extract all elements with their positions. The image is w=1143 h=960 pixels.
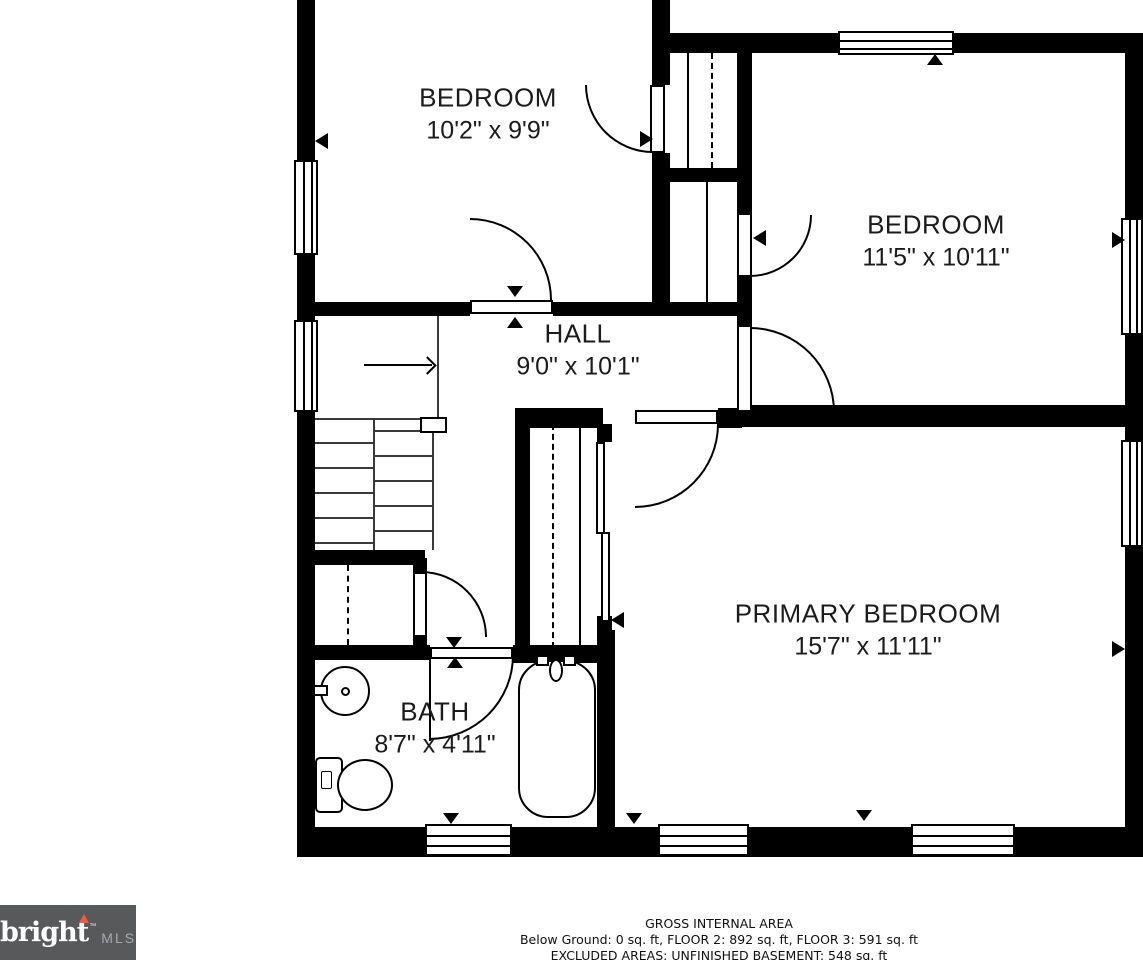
window-marker: [1112, 232, 1125, 248]
window-marker: [856, 810, 872, 821]
door-swing-arc: [635, 424, 719, 508]
stair-tread: [315, 467, 374, 469]
primary-closet-wall-west: [515, 408, 530, 663]
door-marker: [507, 286, 523, 297]
floor-areas-text: Below Ground: 0 sq. ft, FLOOR 2: 892 sq.…: [295, 932, 1143, 948]
closet-wall-west-upper: [652, 0, 670, 85]
stair-tread: [373, 480, 433, 482]
window: [911, 824, 1015, 856]
window: [838, 31, 954, 55]
window-marker: [1112, 641, 1125, 657]
window: [658, 824, 749, 856]
sliding-door-panel: [596, 442, 605, 534]
exterior-wall-left: [297, 0, 315, 857]
bathtub: [518, 660, 596, 818]
toilet-bowl: [337, 759, 393, 811]
room-label-primary-bedroom: PRIMARY BEDROOM 15'7" x 11'11": [735, 599, 1002, 662]
stair-tread: [373, 530, 433, 532]
sliding-door-panel: [601, 532, 610, 622]
door-marker: [640, 131, 653, 147]
bathtub-faucet-handle: [536, 655, 549, 666]
stair-tread: [315, 492, 374, 494]
bathtub-faucet-handle: [563, 655, 576, 666]
window-marker: [315, 133, 328, 149]
room-name: BEDROOM: [862, 210, 1009, 241]
room-label-bath: BATH 8'7" x 4'11": [374, 697, 495, 760]
stair-direction-arrowhead: [418, 356, 436, 374]
closet-shelf-line: [687, 53, 689, 168]
room-name: HALL: [516, 319, 639, 350]
bathtub-spout: [549, 659, 563, 682]
hall-top-wall-right: [553, 302, 752, 316]
bath-east-wall: [597, 630, 615, 827]
stair-tread: [373, 505, 433, 507]
room-name: PRIMARY BEDROOM: [735, 599, 1002, 630]
room-label-bedroom-left: BEDROOM 10'2" x 9'9": [419, 83, 557, 146]
room-dimensions: 11'5" x 10'11": [862, 244, 1009, 273]
window: [1121, 440, 1143, 547]
window: [294, 320, 318, 412]
sliding-door-marker: [611, 612, 624, 628]
brightmls-logo-suffix: MLS: [101, 931, 136, 945]
closet-rod-dashed-line: [552, 424, 554, 648]
room-dimensions: 15'7" x 11'11": [735, 633, 1002, 662]
closet-rod-dashed-line: [711, 53, 713, 168]
stair-tread: [315, 442, 374, 444]
room-dimensions: 9'0" x 10'1": [516, 353, 639, 382]
closet-wall-east-a: [737, 53, 752, 213]
room-label-hall: HALL 9'0" x 10'1": [516, 319, 639, 382]
room-name: BATH: [374, 697, 495, 728]
room-name: BEDROOM: [419, 83, 557, 114]
room-label-bedroom-right: BEDROOM 11'5" x 10'11": [862, 210, 1009, 273]
door-swing-arc: [750, 327, 835, 412]
brightmls-logo-brand: bright: [0, 919, 88, 946]
opening-marker: [447, 657, 463, 668]
door-swing-arc: [750, 215, 812, 277]
gross-internal-area-title: GROSS INTERNAL AREA: [295, 916, 1143, 932]
stair-tread: [373, 455, 433, 457]
stair-tread: [315, 517, 374, 519]
area-summary: GROSS INTERNAL AREA Below Ground: 0 sq. …: [295, 916, 1143, 960]
window: [425, 824, 512, 856]
logo-spark-icon: [79, 914, 89, 923]
trademark-symbol: ™: [89, 923, 96, 930]
sink-drain: [341, 687, 350, 696]
stairwell-edge: [437, 316, 439, 417]
window-marker: [626, 813, 642, 824]
closet-shelf-line: [706, 182, 708, 303]
closet-shelf-line: [579, 424, 581, 648]
door-marker: [753, 230, 766, 246]
door-leaf: [470, 300, 553, 314]
floor-plan: BEDROOM 10'2" x 9'9" BEDROOM 11'5" x 10'…: [0, 0, 1143, 960]
bath-top-wall-left: [297, 645, 430, 660]
closet-wall-east-b: [737, 277, 752, 325]
excluded-areas-text: EXCLUDED AREAS: UNFINISHED BASEMENT: 548…: [295, 948, 1143, 960]
window-marker: [927, 54, 943, 65]
room-dimensions: 10'2" x 9'9": [419, 117, 557, 146]
room-dimensions: 8'7" x 4'11": [374, 731, 495, 760]
opening-marker: [446, 637, 462, 648]
stair-edge: [432, 433, 434, 550]
brightmls-logo: bright ™ MLS: [0, 905, 136, 960]
stair-bottom-wall: [297, 550, 425, 565]
stair-tread: [315, 542, 374, 544]
sink-faucet: [313, 685, 328, 696]
window-marker: [443, 813, 459, 824]
toilet-flush-button: [321, 771, 332, 789]
closet-rod-dashed-line: [347, 565, 349, 645]
stair-wall-notch: [420, 417, 447, 433]
hall-top-wall-left: [313, 302, 470, 316]
window: [294, 160, 318, 255]
sliding-door-stub-top: [597, 424, 612, 442]
door-leaf: [635, 410, 718, 424]
door-swing-arc: [421, 571, 487, 637]
